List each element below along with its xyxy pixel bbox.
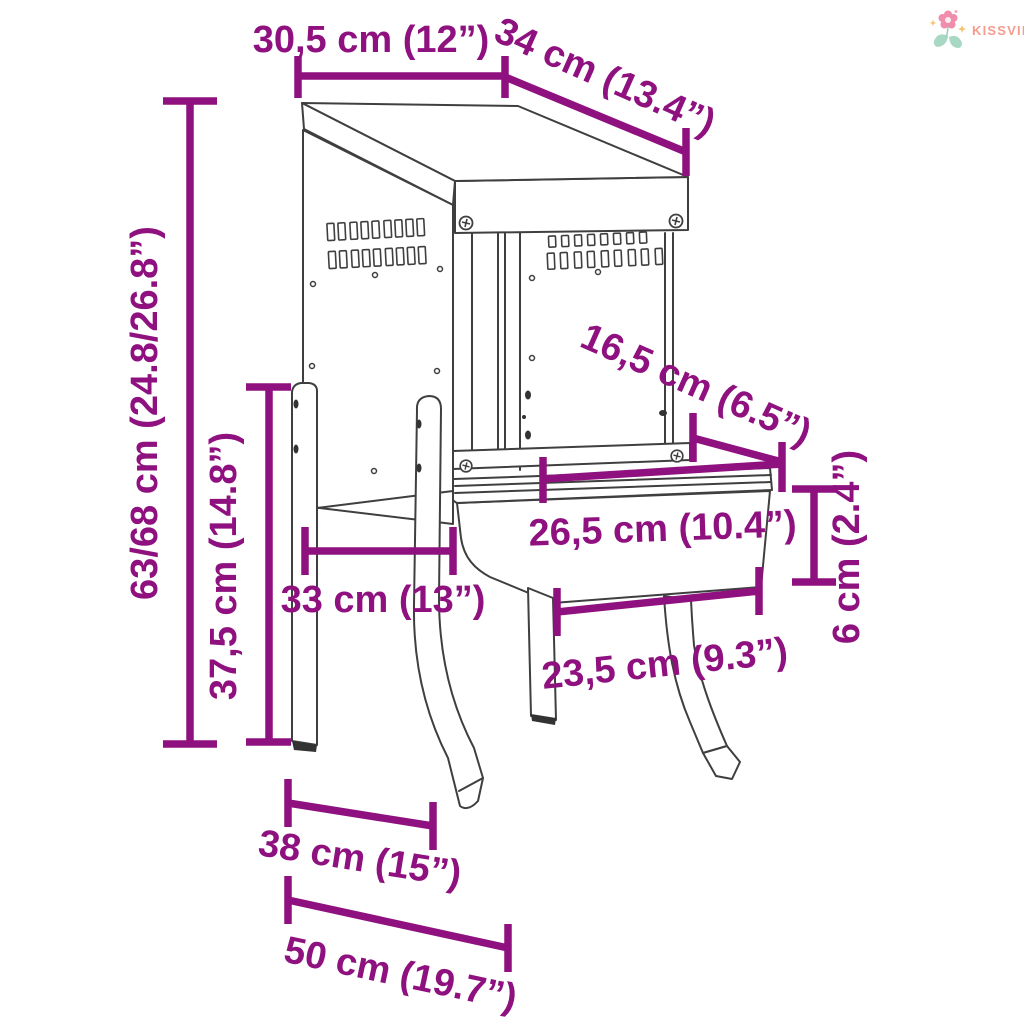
vent-slot [587, 234, 594, 245]
vent-slot [561, 235, 568, 246]
vent-slot [641, 249, 649, 265]
vent-slot [338, 223, 346, 240]
leg-hole [294, 400, 299, 409]
vent-slot [548, 236, 555, 247]
flower-center [945, 17, 951, 23]
dimension-label: 63/68 cm (24.8/26.8”) [124, 226, 166, 600]
vent-slot [339, 251, 347, 268]
vent-slot [327, 223, 335, 240]
vent-slot [384, 220, 392, 237]
vent-slot [350, 222, 358, 239]
screw-icon [460, 217, 473, 230]
leg-hole [417, 420, 422, 429]
vent-slot [560, 252, 568, 268]
vent-slot [362, 249, 370, 266]
sparkle-dot [955, 10, 958, 13]
vent-slot [417, 219, 425, 236]
dimension-label: 6 cm (2.4”) [826, 450, 868, 644]
vent-slot [373, 249, 381, 266]
brand-name: KISSVILÁG [972, 23, 1024, 38]
front-fascia [455, 177, 688, 233]
vent-slot [587, 251, 595, 267]
panel-hole [372, 469, 377, 474]
vent-slot [600, 234, 607, 245]
vent-slot [614, 250, 622, 266]
panel-hole [659, 410, 667, 416]
vent-slot [361, 222, 369, 239]
vent-slot [328, 251, 336, 268]
vent-slot [395, 220, 403, 237]
panel-hole [522, 415, 526, 419]
vent-slot [351, 250, 359, 267]
dimension-label: 37,5 cm (14.8”) [203, 432, 245, 700]
panel-hole [525, 431, 531, 440]
dimension-label: 30,5 cm (12”) [253, 19, 490, 61]
vent-slot [639, 232, 646, 243]
vent-slot [626, 233, 633, 244]
panel-hole [438, 267, 443, 272]
vent-slot [372, 221, 380, 238]
vent-slot [418, 247, 426, 264]
vent-slot [601, 251, 609, 267]
panel-hole [596, 270, 601, 275]
vent-slot [396, 248, 404, 265]
panel-hole [530, 356, 535, 361]
screw-icon [670, 215, 683, 228]
vent-slot [613, 233, 620, 244]
vent-slot [574, 235, 581, 246]
panel-hole [525, 391, 531, 400]
vent-slot [547, 253, 555, 269]
nesting-box-dimension-diagram: 30,5 cm (12”) 34 cm (13.4”) 63/68 cm (24… [0, 0, 1024, 1024]
panel-hole [310, 364, 315, 369]
leg-hole [294, 445, 299, 454]
vent-slot [406, 219, 414, 236]
vent-slot [574, 252, 582, 268]
screw-icon [671, 450, 683, 462]
vent-slot [655, 248, 663, 264]
leg-hole [417, 464, 422, 473]
panel-hole [435, 369, 440, 374]
vent-slot [407, 247, 415, 264]
panel-hole [530, 276, 535, 281]
screw-icon [460, 460, 472, 472]
dimension-label: 33 cm (13”) [281, 579, 486, 621]
panel-hole [373, 273, 378, 278]
panel-hole [311, 282, 316, 287]
vent-slot [385, 248, 393, 265]
vent-slot [628, 249, 636, 265]
dimension-diagram-page: 30,5 cm (12”) 34 cm (13.4”) 63/68 cm (24… [0, 0, 1024, 1024]
